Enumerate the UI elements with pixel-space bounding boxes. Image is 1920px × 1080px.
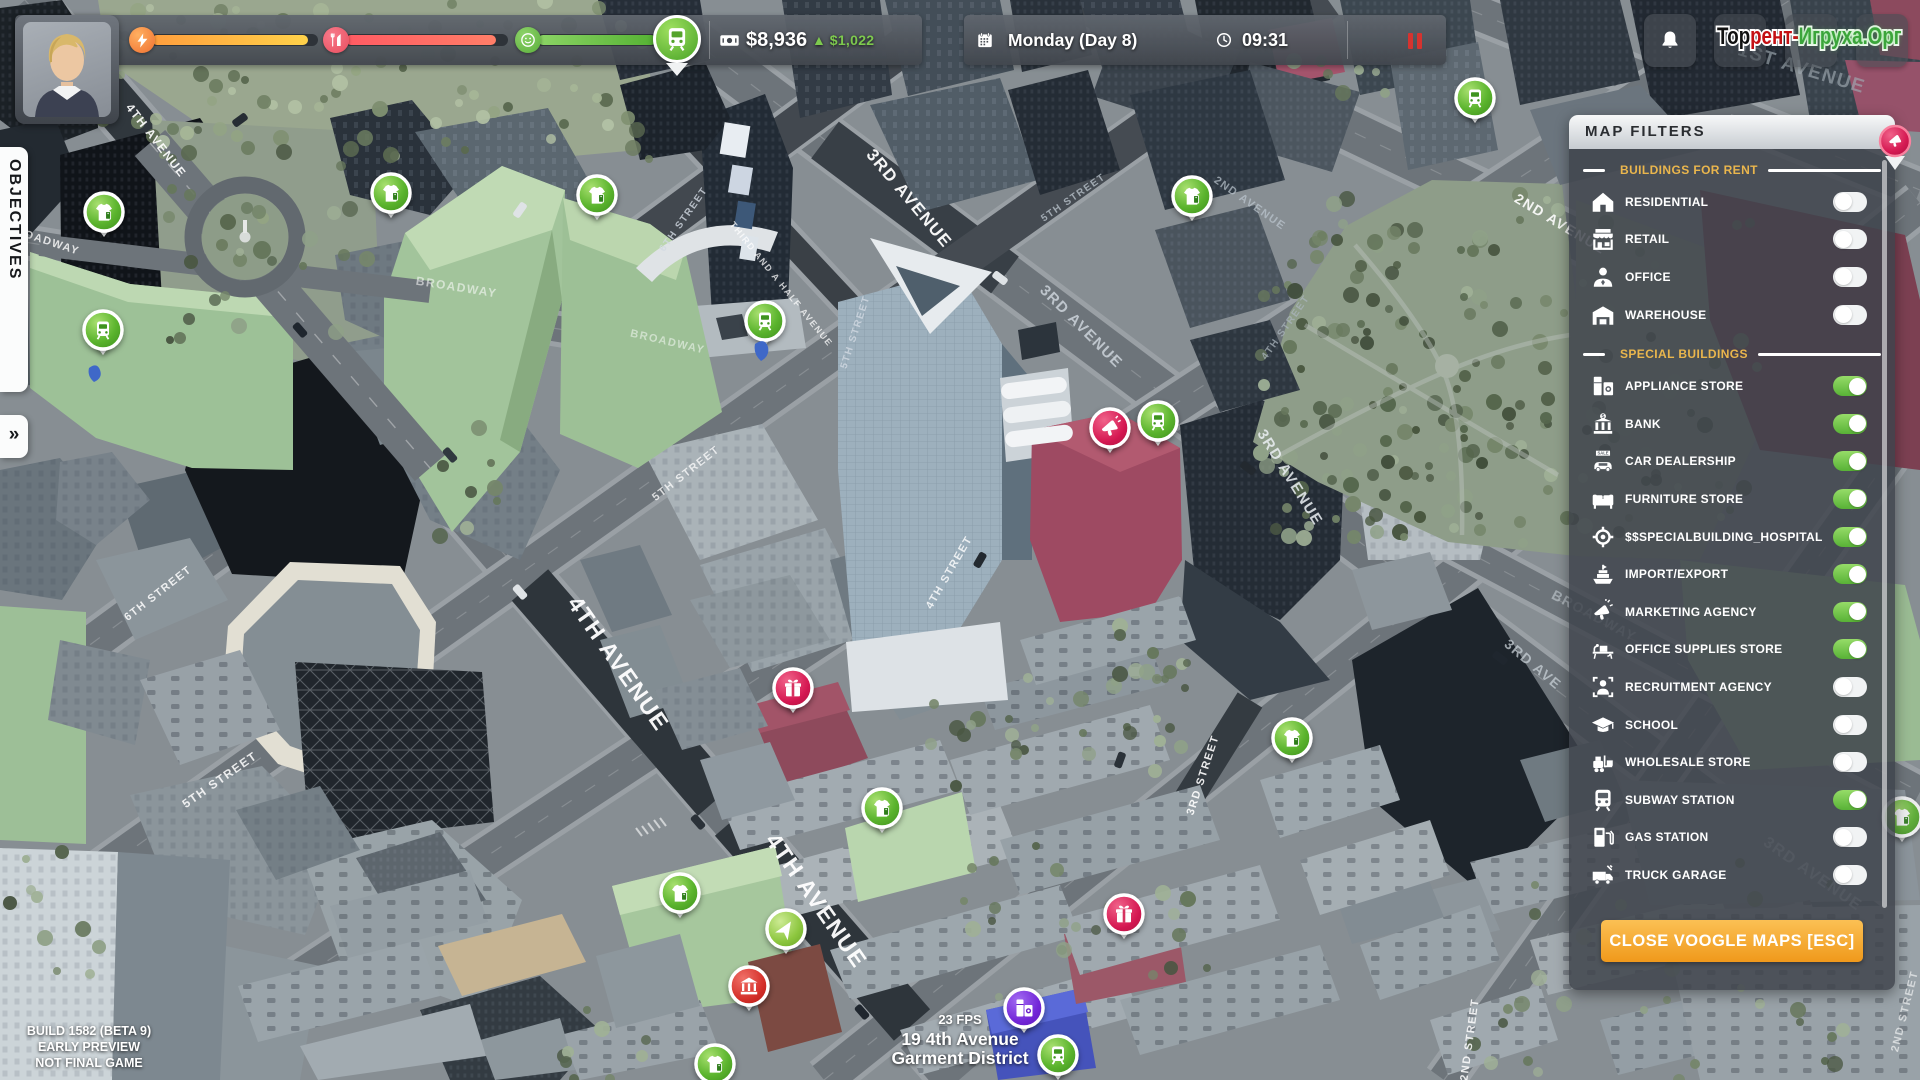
svg-text:SALE: SALE (1598, 451, 1609, 456)
